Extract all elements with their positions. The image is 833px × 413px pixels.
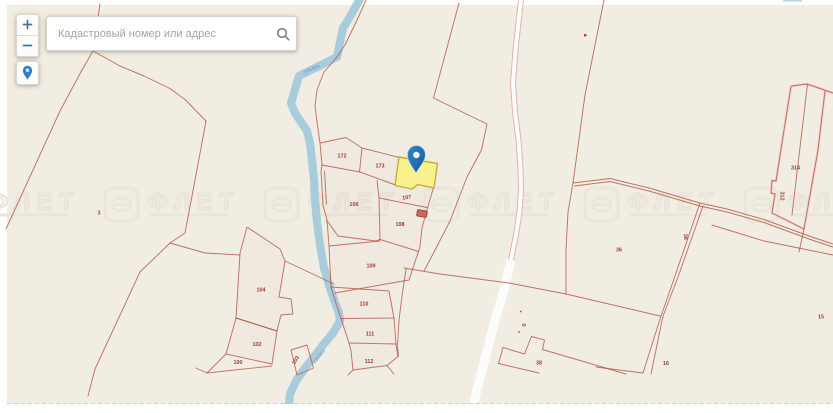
svg-text:109: 109 bbox=[367, 264, 376, 270]
svg-text:15: 15 bbox=[818, 315, 824, 321]
svg-text:173: 173 bbox=[376, 164, 385, 170]
svg-text:100: 100 bbox=[234, 360, 243, 366]
svg-text:16: 16 bbox=[663, 361, 669, 367]
svg-text:172: 172 bbox=[338, 154, 347, 160]
svg-text:110: 110 bbox=[360, 302, 369, 308]
svg-text:0: 0 bbox=[520, 324, 526, 327]
svg-text:104: 104 bbox=[257, 288, 266, 294]
svg-text:108: 108 bbox=[396, 222, 405, 228]
svg-text:314: 314 bbox=[791, 166, 800, 172]
svg-text:107: 107 bbox=[402, 194, 412, 201]
svg-text:3: 3 bbox=[98, 211, 101, 217]
svg-text:312: 312 bbox=[779, 192, 785, 201]
svg-text:111: 111 bbox=[366, 332, 374, 338]
svg-text:106: 106 bbox=[350, 202, 359, 208]
svg-text:36: 36 bbox=[682, 234, 689, 241]
svg-text:102: 102 bbox=[253, 342, 262, 348]
svg-text:36: 36 bbox=[616, 248, 622, 254]
svg-text:38: 38 bbox=[536, 361, 542, 367]
svg-text:112: 112 bbox=[365, 359, 374, 365]
